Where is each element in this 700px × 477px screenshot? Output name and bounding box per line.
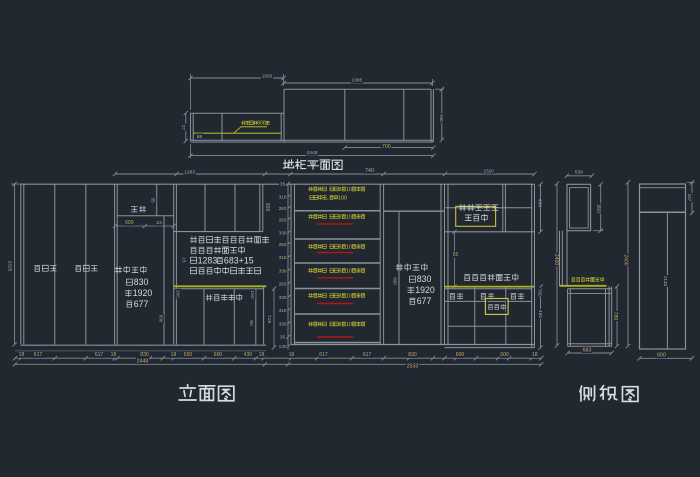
svg-text:100: 100 [338, 195, 347, 201]
svg-text:2385: 2385 [352, 78, 363, 83]
svg-text:830: 830 [159, 315, 164, 323]
svg-text:10: 10 [346, 293, 352, 299]
svg-text:1283: 1283 [184, 169, 195, 175]
svg-text:300: 300 [264, 203, 270, 212]
svg-text:617: 617 [95, 352, 104, 358]
svg-text:10: 10 [346, 244, 352, 250]
svg-text:830: 830 [134, 277, 149, 287]
svg-text:1920: 1920 [133, 288, 153, 298]
svg-text:318: 318 [279, 255, 287, 261]
svg-text:35: 35 [280, 181, 286, 187]
svg-text:677: 677 [134, 299, 149, 309]
svg-text:2448: 2448 [306, 150, 317, 156]
svg-text:18: 18 [111, 352, 117, 358]
svg-text:318: 318 [279, 308, 287, 314]
svg-text:18: 18 [171, 352, 177, 358]
svg-text:8: 8 [338, 268, 341, 274]
svg-text:267: 267 [687, 194, 692, 202]
svg-text:350: 350 [595, 204, 601, 213]
svg-text:2400: 2400 [553, 254, 559, 266]
svg-text:80: 80 [248, 320, 254, 326]
svg-text:55: 55 [197, 134, 203, 140]
svg-text:18: 18 [259, 352, 265, 358]
svg-text:18: 18 [19, 352, 25, 358]
svg-text:330: 330 [279, 268, 287, 274]
svg-text:718: 718 [266, 315, 272, 324]
svg-text:530: 530 [439, 114, 444, 122]
svg-text:10: 10 [346, 187, 352, 193]
svg-text:8: 8 [338, 187, 341, 193]
svg-text:23: 23 [156, 220, 162, 226]
svg-text:1920: 1920 [415, 285, 435, 295]
svg-text:8: 8 [338, 293, 341, 299]
svg-text:617: 617 [34, 352, 43, 358]
svg-text:330: 330 [279, 231, 287, 237]
svg-text:150: 150 [174, 290, 180, 299]
svg-text:283: 283 [279, 242, 287, 248]
svg-text:55: 55 [453, 252, 459, 258]
svg-text:330: 330 [279, 295, 287, 301]
svg-text:283: 283 [279, 282, 287, 288]
svg-text:740: 740 [365, 168, 374, 174]
svg-text:1065: 1065 [262, 74, 273, 79]
svg-text:10: 10 [346, 214, 352, 220]
svg-text:830: 830 [393, 277, 398, 285]
svg-text:2400: 2400 [623, 254, 629, 265]
svg-text:530: 530 [575, 170, 584, 176]
svg-text:430: 430 [244, 352, 253, 358]
svg-text:617: 617 [319, 352, 328, 358]
svg-text:27: 27 [180, 125, 186, 131]
svg-text:1283: 1283 [198, 255, 218, 265]
svg-text:677: 677 [417, 296, 432, 306]
svg-text:1520: 1520 [483, 168, 494, 173]
svg-text:18: 18 [289, 352, 295, 358]
svg-text:2133: 2133 [663, 276, 668, 287]
svg-text:830: 830 [417, 274, 432, 284]
svg-text:8: 8 [338, 322, 341, 328]
svg-text:150: 150 [249, 290, 255, 299]
svg-text:8: 8 [338, 214, 341, 220]
svg-text:600: 600 [456, 352, 465, 358]
svg-text:283: 283 [279, 217, 287, 223]
svg-text:600: 600 [500, 352, 509, 358]
svg-text:330: 330 [279, 321, 287, 327]
svg-text:490: 490 [537, 310, 543, 319]
svg-text:617: 617 [363, 352, 372, 358]
svg-text:2448: 2448 [137, 358, 149, 364]
svg-text:318: 318 [279, 195, 287, 201]
svg-text:15: 15 [180, 257, 186, 263]
svg-text:780: 780 [612, 312, 618, 321]
svg-text:550: 550 [184, 352, 193, 358]
svg-text:10: 10 [346, 322, 352, 328]
svg-text:8: 8 [338, 244, 341, 250]
svg-text:480: 480 [537, 199, 543, 208]
svg-text:683: 683 [583, 347, 592, 353]
svg-text:700: 700 [382, 144, 391, 150]
svg-text:10: 10 [346, 268, 352, 274]
svg-text:35: 35 [280, 335, 286, 341]
svg-text:2533: 2533 [407, 364, 419, 370]
svg-text:683+15: 683+15 [224, 255, 254, 265]
svg-text:780: 780 [537, 288, 543, 297]
svg-text:600: 600 [257, 121, 266, 127]
svg-text:600: 600 [657, 353, 666, 359]
svg-text:283: 283 [279, 206, 287, 212]
svg-text:130: 130 [279, 344, 287, 350]
svg-text:35: 35 [150, 197, 156, 203]
svg-text:600: 600 [214, 352, 223, 358]
svg-text:18: 18 [532, 352, 538, 358]
svg-text:600: 600 [125, 220, 134, 226]
svg-text:830: 830 [408, 352, 417, 358]
svg-text:2325: 2325 [6, 261, 12, 272]
